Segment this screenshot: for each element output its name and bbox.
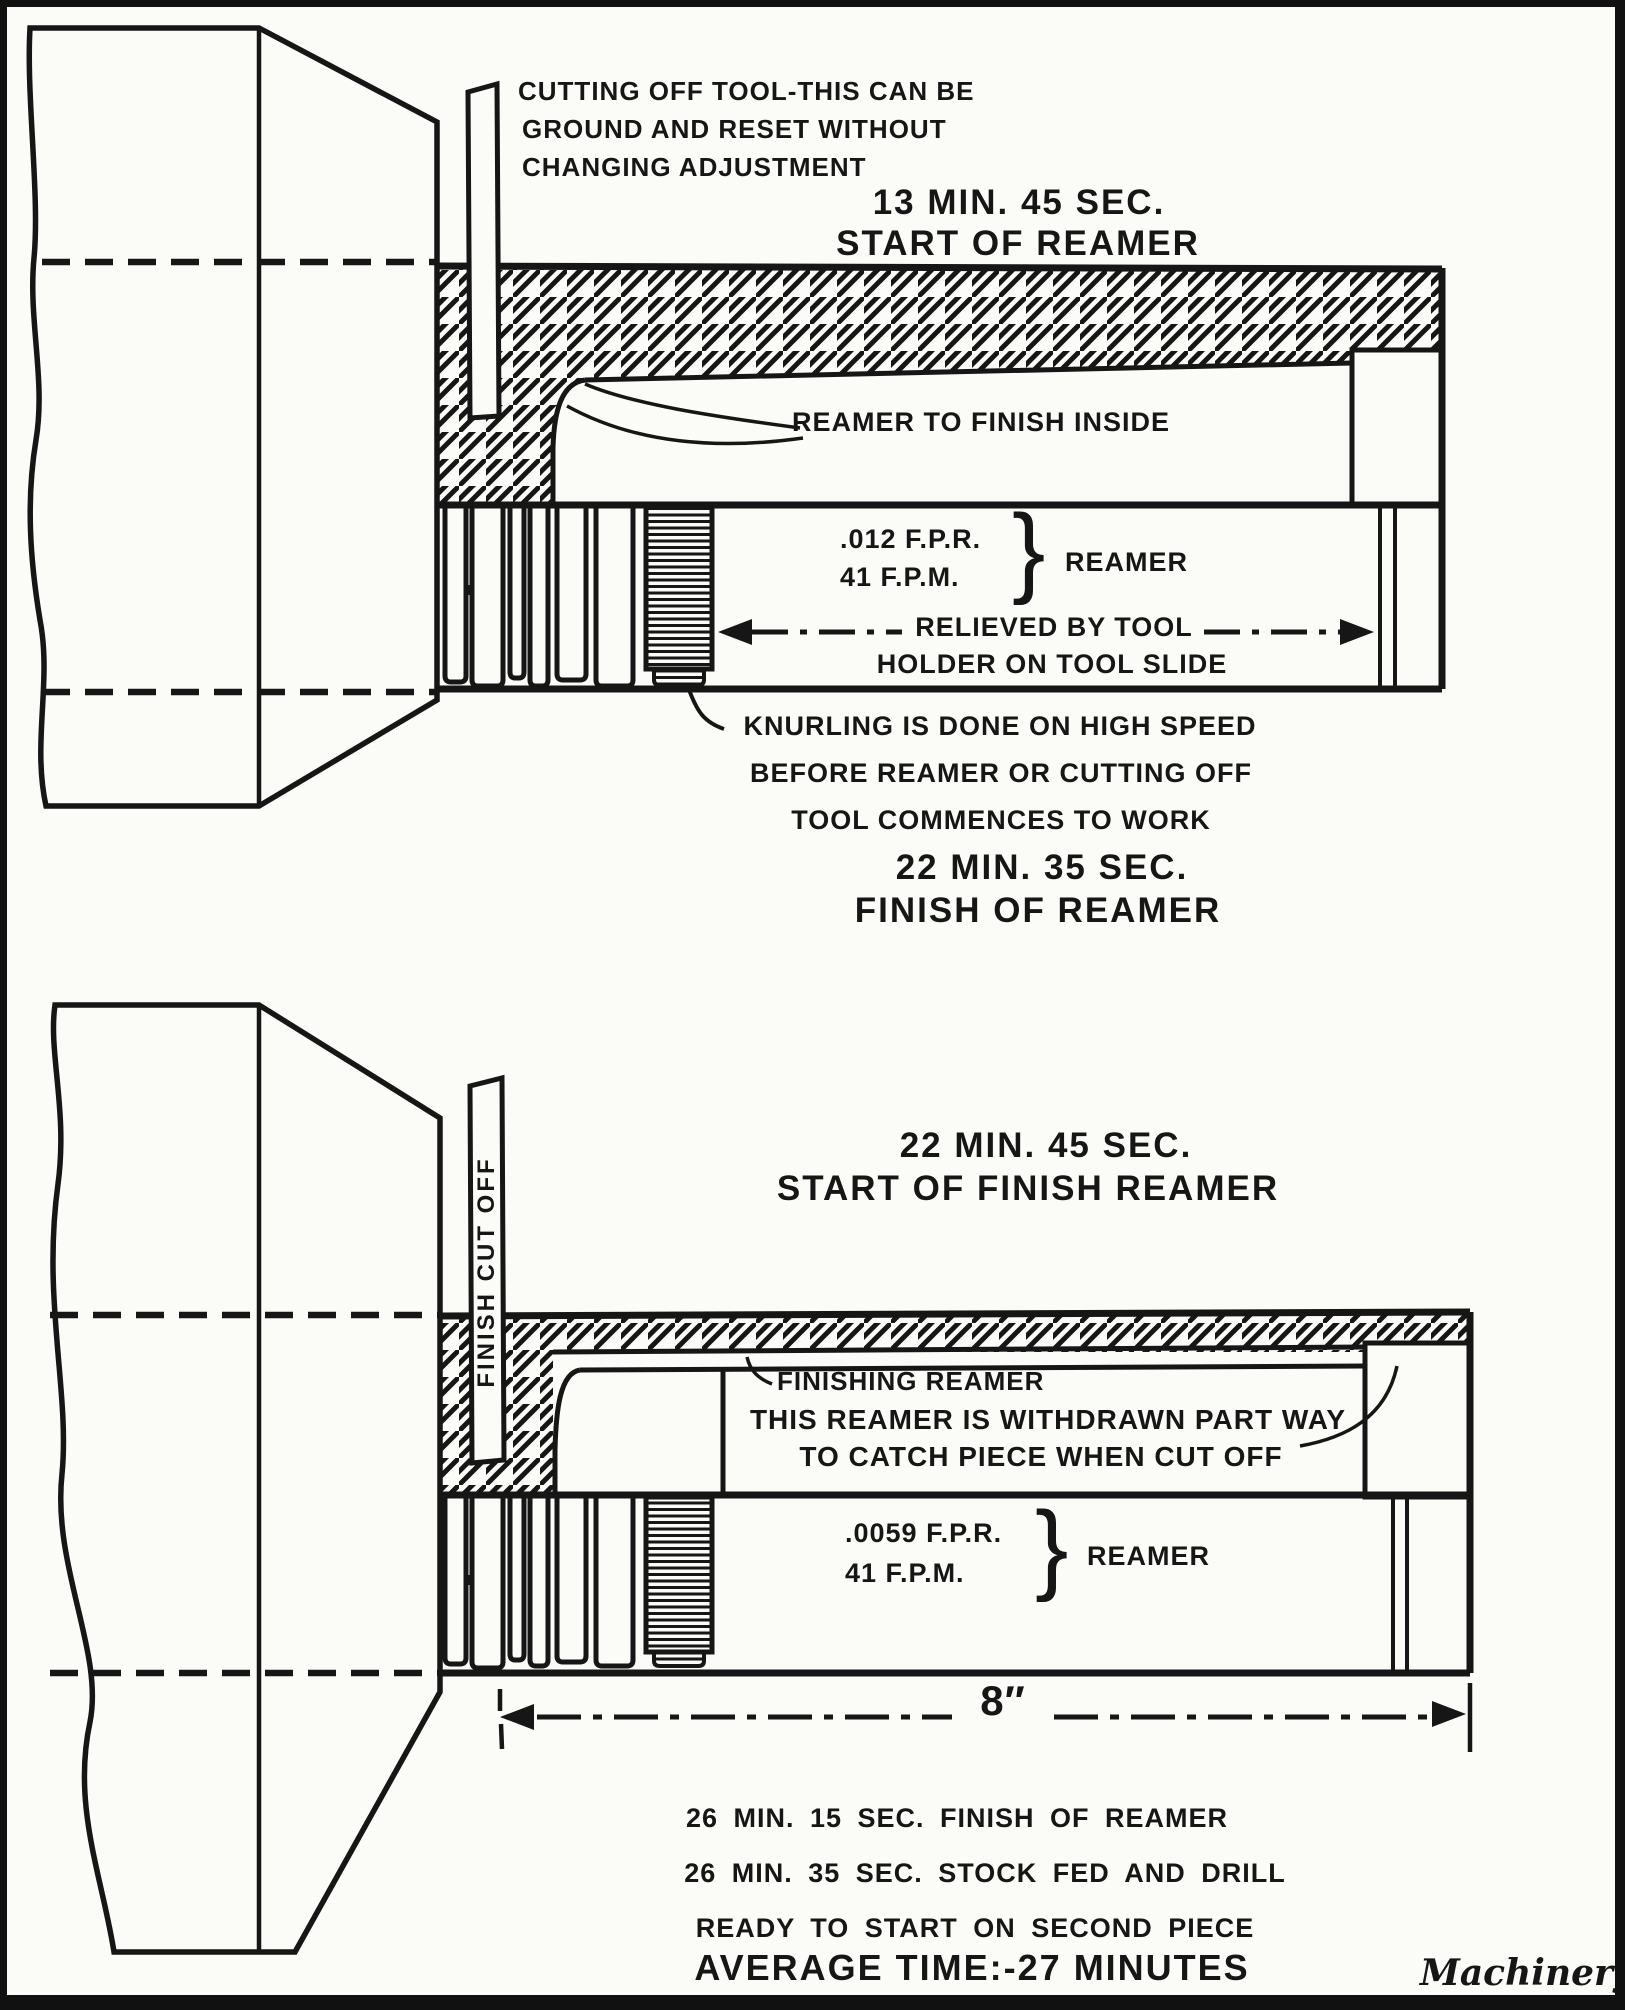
reamer-label: REAMER (1087, 1543, 1210, 1570)
reamer-to-finish-inside-label: REAMER TO FINISH INSIDE (792, 409, 1170, 436)
knurl-band-stub (654, 669, 704, 685)
relieved-note-line1: RELIEVED BY TOOL (915, 614, 1193, 641)
machining-diagram-page: CUTTING OFF TOOL-THIS CAN BE GROUND AND … (0, 0, 1625, 2010)
brace-glyph: } (1035, 1497, 1068, 1597)
finishing-reamer-label: FINISHING REAMER (777, 1368, 1044, 1394)
reamer-holder-block (1365, 1343, 1470, 1497)
schedule-line1: 26 MIN. 15 SEC. FINISH OF REAMER (686, 1805, 1228, 1832)
arrowhead-left (718, 619, 752, 645)
reamer-holder-block (1352, 350, 1442, 505)
finishing-reamer-nose (555, 1370, 650, 1493)
cutoff-tool-note-line3: CHANGING ADJUSTMENT (522, 154, 866, 180)
arrowhead-right (1340, 619, 1374, 645)
reamer-label: REAMER (1065, 549, 1188, 576)
cutoff-tool-note-line1: CUTTING OFF TOOL-THIS CAN BE (518, 78, 975, 104)
turned-grooves (445, 1497, 633, 1668)
average-time-label: AVERAGE TIME:-27 MINUTES (694, 1950, 1249, 1986)
reamer-leader-line (585, 384, 800, 428)
withdrawn-note-line2: TO CATCH PIECE WHEN CUT OFF (799, 1443, 1282, 1471)
time-start-reamer-line2: START OF REAMER (836, 226, 1200, 261)
withdrawn-note-line1: THIS REAMER IS WITHDRAWN PART WAY (750, 1406, 1346, 1434)
knurling-note-line2: BEFORE REAMER OR CUTTING OFF (750, 760, 1252, 787)
knurling-note-line3: TOOL COMMENCES TO WORK (791, 807, 1211, 834)
schedule-line2: 26 MIN. 35 SEC. STOCK FED AND DRILL (684, 1860, 1286, 1887)
chuck-outline (53, 1005, 440, 1952)
arrowhead-right (1432, 1701, 1466, 1727)
dimension-8-inch-label: 8″ (972, 1680, 1033, 1722)
extension-tick (501, 1724, 502, 1749)
time-start-reamer-line1: 13 MIN. 45 SEC. (873, 185, 1166, 220)
arrowhead-left (500, 1704, 534, 1730)
time-start-finish-reamer-line2: START OF FINISH REAMER (777, 1171, 1279, 1206)
feet-per-min-value: 41 F.P.M. (840, 564, 960, 591)
turned-grooves (445, 507, 633, 686)
machinery-credit: Machinery (1420, 1955, 1625, 1991)
tube-outer-line (440, 1312, 1470, 1316)
time-finish-reamer-line1: 22 MIN. 35 SEC. (896, 850, 1189, 885)
line-art (0, 0, 1625, 2010)
knurl-band (646, 507, 712, 669)
knurl-band-stub (654, 1652, 704, 1666)
feed-per-rev-value: .0059 F.P.R. (845, 1520, 1002, 1547)
brace-glyph: } (1012, 500, 1045, 600)
time-start-finish-reamer-line1: 22 MIN. 45 SEC. (900, 1128, 1193, 1163)
feed-per-rev-value: .012 F.P.R. (840, 526, 981, 553)
cutoff-tool-note-line2: GROUND AND RESET WITHOUT (522, 116, 947, 142)
knurl-leader-line (688, 687, 724, 729)
relieved-note-line2: HOLDER ON TOOL SLIDE (877, 651, 1228, 678)
feet-per-min-value: 41 F.P.M. (845, 1560, 965, 1587)
time-finish-reamer-line2: FINISH OF REAMER (855, 893, 1221, 928)
knurl-band (646, 1497, 712, 1652)
knurling-note-line1: KNURLING IS DONE ON HIGH SPEED (743, 713, 1256, 740)
cutting-off-tool-blade (468, 84, 499, 418)
figure1-drawing (29, 28, 1442, 806)
finish-cut-off-blade-label: FINISH CUT OFF (475, 1156, 499, 1387)
schedule-line3: READY TO START ON SECOND PIECE (696, 1915, 1255, 1942)
tube-outer-line (437, 266, 1442, 269)
